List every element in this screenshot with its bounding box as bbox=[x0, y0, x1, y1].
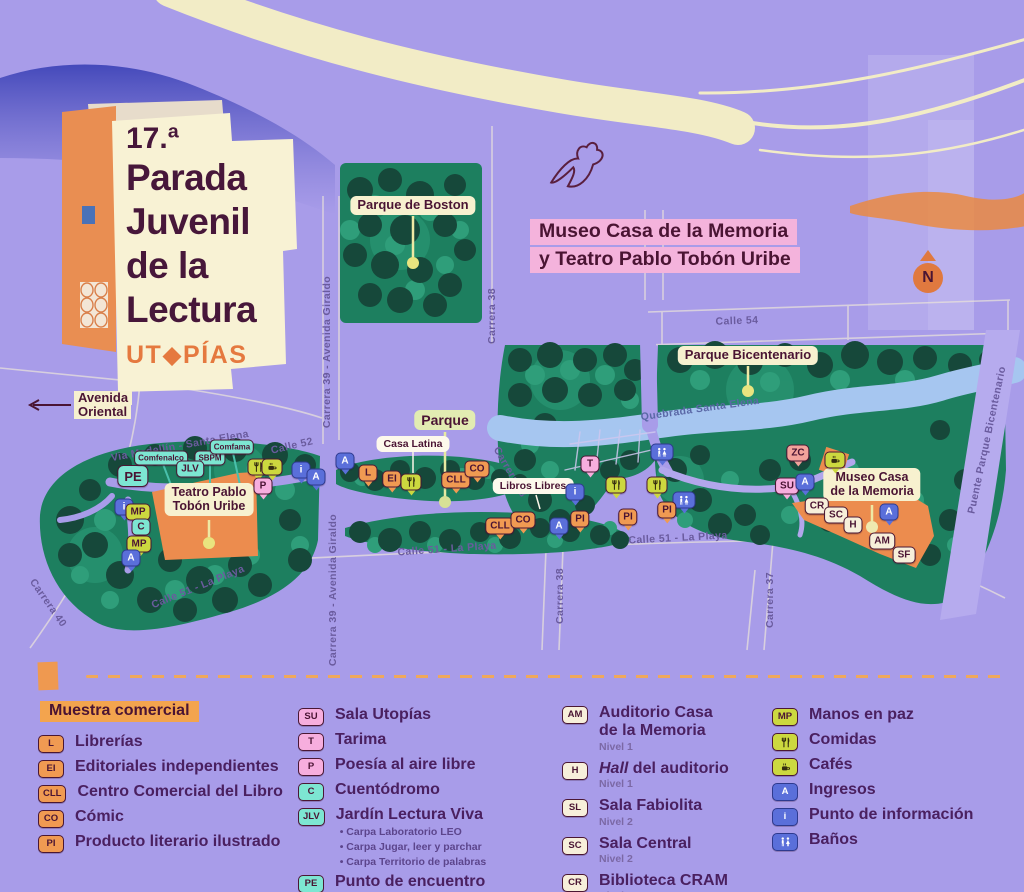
legend-label: Cuentódromo bbox=[335, 781, 440, 799]
street-label: Carrera 39 - Avenida Giraldo bbox=[327, 514, 339, 666]
legend-badge-restroom-icon bbox=[772, 833, 798, 851]
legend-item: MPManos en paz bbox=[772, 706, 1007, 726]
title-line: Parada bbox=[126, 156, 256, 200]
title-edition: 17.ª bbox=[126, 122, 256, 156]
map-marker-food-icon bbox=[606, 477, 627, 494]
legend-item: JLVJardín Lectura Viva• Carpa Laboratori… bbox=[298, 806, 550, 868]
legend-label: Sala Utopías bbox=[335, 706, 431, 724]
title-line: de la bbox=[126, 244, 256, 288]
legend-badge-pi: PI bbox=[38, 835, 64, 853]
legend-badge-pe: PE bbox=[298, 875, 324, 892]
legend-badge-cr: CR bbox=[562, 874, 588, 892]
map-marker-zc: ZC bbox=[786, 445, 809, 462]
legend-badge-cll: CLL bbox=[38, 785, 66, 803]
street-label: Carrera 38 bbox=[486, 288, 498, 344]
legend-badge-a: A bbox=[772, 783, 798, 801]
map-marker-co: CO bbox=[465, 461, 490, 478]
map-marker-h: H bbox=[844, 517, 863, 534]
legend-item: LLibrerías bbox=[38, 733, 300, 753]
legend-item: Comidas bbox=[772, 731, 1007, 751]
map-marker-cafe-icon bbox=[262, 459, 283, 476]
legend-badge-cafe-icon bbox=[772, 758, 798, 776]
street-label: Carrera 38 bbox=[554, 568, 566, 624]
legend-item: SLSala FabiolitaNivel 2 bbox=[562, 797, 766, 829]
legend-item: AIngresos bbox=[772, 781, 1007, 801]
page-title: 17.ª Parada Juvenil de la Lectura UT◆PÍA… bbox=[126, 122, 256, 370]
map-marker-restroom-icon bbox=[651, 444, 674, 461]
map-marker-a: A bbox=[122, 550, 141, 567]
legend-badge-am: AM bbox=[562, 706, 588, 724]
map-marker-a: A bbox=[307, 469, 326, 486]
map-marker-food-icon bbox=[401, 474, 422, 491]
map-marker-pi: PI bbox=[657, 502, 676, 519]
map-marker-jlv: JLV bbox=[176, 461, 204, 478]
legend-column-muestra: LLibreríasEIEditoriales independientesCL… bbox=[38, 733, 300, 858]
legend-badge-sl: SL bbox=[562, 799, 588, 817]
legend-item: iPunto de información bbox=[772, 806, 1007, 826]
map-marker-t: T bbox=[581, 456, 600, 473]
legend-label: Punto de información bbox=[809, 806, 973, 824]
legend-item: AMAuditorio Casa de la MemoriaNivel 1 bbox=[562, 704, 766, 755]
event-map-poster: Via Medellín - Santa ElenaCalle 52Calle … bbox=[0, 0, 1024, 892]
legend-label: Jardín Lectura Viva bbox=[336, 806, 486, 824]
area-label: Parque Bicentenario bbox=[678, 346, 818, 365]
compass-north-icon: N bbox=[913, 263, 943, 293]
legend-item: CCuentódromo bbox=[298, 781, 550, 801]
map-marker-food-icon bbox=[647, 477, 668, 494]
legend-label: Comidas bbox=[809, 731, 877, 749]
map-marker-l: L bbox=[359, 465, 378, 482]
legend-item: PEPunto de encuentro itinerancias bbox=[298, 873, 550, 892]
legend-badge-jlv: JLV bbox=[298, 808, 325, 826]
legend-label: Hall del auditorio bbox=[599, 760, 729, 778]
legend-item: COCómic bbox=[38, 808, 300, 828]
legend-badge-i: i bbox=[772, 808, 798, 826]
legend-section-title: Muestra comercial bbox=[40, 701, 199, 722]
map-marker-am: AM bbox=[869, 533, 895, 550]
legend-column-escenarios: SUSala UtopíasTTarimaPPoesía al aire lib… bbox=[298, 706, 550, 892]
legend-item: Cafés bbox=[772, 756, 1007, 776]
map-marker-a: A bbox=[550, 518, 569, 535]
area-label: Teatro PabloTobón Uribe bbox=[165, 483, 254, 516]
legend-label: Librerías bbox=[75, 733, 143, 751]
map-marker-ei: EI bbox=[382, 471, 401, 488]
museum-banner-line: y Teatro Pablo Tobón Uribe bbox=[530, 247, 800, 273]
street-label: Calle 54 bbox=[715, 314, 758, 327]
map-marker-c: C bbox=[132, 519, 151, 536]
legend-badge-c: C bbox=[298, 783, 324, 801]
area-label: Parque bbox=[414, 410, 475, 430]
legend-item: HHall del auditorioNivel 1 bbox=[562, 760, 766, 792]
map-marker-pi: PI bbox=[570, 511, 589, 528]
area-label: Parque de Boston bbox=[350, 196, 475, 215]
legend-label: Sala Central bbox=[599, 835, 691, 853]
map-marker-sf: SF bbox=[893, 547, 916, 564]
map-marker-a: A bbox=[796, 474, 815, 491]
legend-badge-mp: MP bbox=[772, 708, 798, 726]
legend-badge-ei: EI bbox=[38, 760, 64, 778]
legend-badge-l: L bbox=[38, 735, 64, 753]
legend-label: Ingresos bbox=[809, 781, 876, 799]
title-line: Lectura bbox=[126, 288, 256, 332]
legend-label: Tarima bbox=[335, 731, 386, 749]
legend-label: Biblioteca CRAM bbox=[599, 872, 728, 890]
street-label: Carrera 39 - Avenida Giraldo bbox=[321, 276, 333, 428]
map-marker-p: P bbox=[254, 478, 273, 495]
area-label: Casa Latina bbox=[377, 436, 450, 452]
map-marker-a: A bbox=[880, 504, 899, 521]
west-arrow-icon bbox=[27, 398, 72, 412]
legend-badge-h: H bbox=[562, 762, 588, 780]
legend-label: Centro Comercial del Libro bbox=[77, 783, 282, 801]
legend-item: CRBiblioteca CRAMNivel 3 bbox=[562, 872, 766, 892]
legend-label: Poesía al aire libre bbox=[335, 756, 476, 774]
legend-badge-food-icon bbox=[772, 733, 798, 751]
map-marker-a: A bbox=[336, 453, 355, 470]
legend-label: Baños bbox=[809, 831, 858, 849]
map-marker-cafe-icon bbox=[825, 452, 846, 469]
legend-item: Baños bbox=[772, 831, 1007, 851]
legend-badge-sc: SC bbox=[562, 837, 588, 855]
legend-badge-p: P bbox=[298, 758, 324, 776]
map-marker-co: CO bbox=[511, 512, 536, 529]
street-label: Carrera 37 bbox=[764, 572, 776, 628]
legend-item: PIProducto literario ilustrado bbox=[38, 833, 300, 853]
museum-banner-line: Museo Casa de la Memoria bbox=[530, 219, 797, 245]
legend-item: CLLCentro Comercial del Libro bbox=[38, 783, 300, 803]
legend-column-museo: AMAuditorio Casa de la MemoriaNivel 1HHa… bbox=[562, 704, 766, 892]
legend-label: Editoriales independientes bbox=[75, 758, 279, 776]
legend-label: Cómic bbox=[75, 808, 124, 826]
legend-label: Sala Fabiolita bbox=[599, 797, 702, 815]
legend-item: EIEditoriales independientes bbox=[38, 758, 300, 778]
legend-badge-co: CO bbox=[38, 810, 64, 828]
legend-item: SCSala CentralNivel 2 bbox=[562, 835, 766, 867]
legend-label: Manos en paz bbox=[809, 706, 914, 724]
legend-item: TTarima bbox=[298, 731, 550, 751]
legend-label: Auditorio Casa de la Memoria bbox=[599, 704, 729, 741]
legend-accent-block bbox=[38, 662, 59, 691]
utopias-brand: UT◆PÍAS bbox=[126, 340, 256, 370]
area-label: Libros Libres bbox=[493, 478, 574, 494]
legend-item: SUSala Utopías bbox=[298, 706, 550, 726]
legend-label: Punto de encuentro itinerancias bbox=[335, 873, 505, 892]
legend-column-servicios: MPManos en pazComidasCafésAIngresosiPunt… bbox=[772, 706, 1007, 856]
map-marker-comfama: Comfama bbox=[210, 440, 254, 455]
legend-item: PPoesía al aire libre bbox=[298, 756, 550, 776]
map-marker-pe: PE bbox=[117, 465, 148, 487]
avenida-oriental-label: Avenida Oriental bbox=[74, 391, 132, 419]
legend-label: Cafés bbox=[809, 756, 853, 774]
museum-banner: Museo Casa de la Memoria y Teatro Pablo … bbox=[530, 219, 800, 275]
legend-badge-su: SU bbox=[298, 708, 324, 726]
legend-divider bbox=[86, 675, 1006, 678]
title-line: Juvenil bbox=[126, 200, 256, 244]
map-marker-i: i bbox=[566, 484, 585, 501]
legend-label: Producto literario ilustrado bbox=[75, 833, 280, 851]
map-marker-pi: PI bbox=[618, 509, 637, 526]
legend-badge-t: T bbox=[298, 733, 324, 751]
